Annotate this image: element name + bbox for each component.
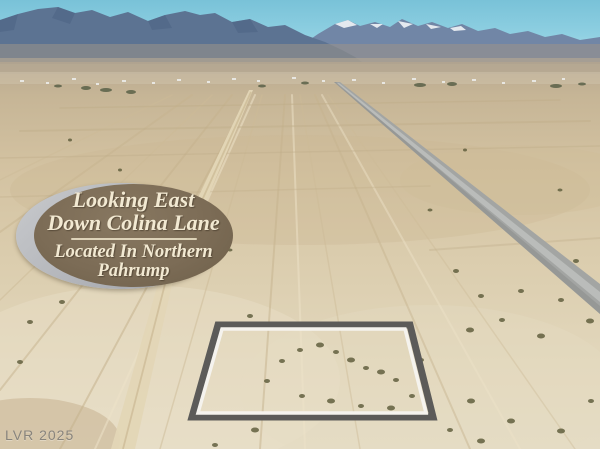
watermark: LVR 2025 bbox=[5, 427, 74, 443]
valley-haze bbox=[0, 72, 600, 84]
scene-artwork bbox=[0, 0, 600, 449]
foothill-haze bbox=[0, 58, 600, 74]
aerial-photo: Looking East Down Colina Lane Located In… bbox=[0, 0, 600, 449]
